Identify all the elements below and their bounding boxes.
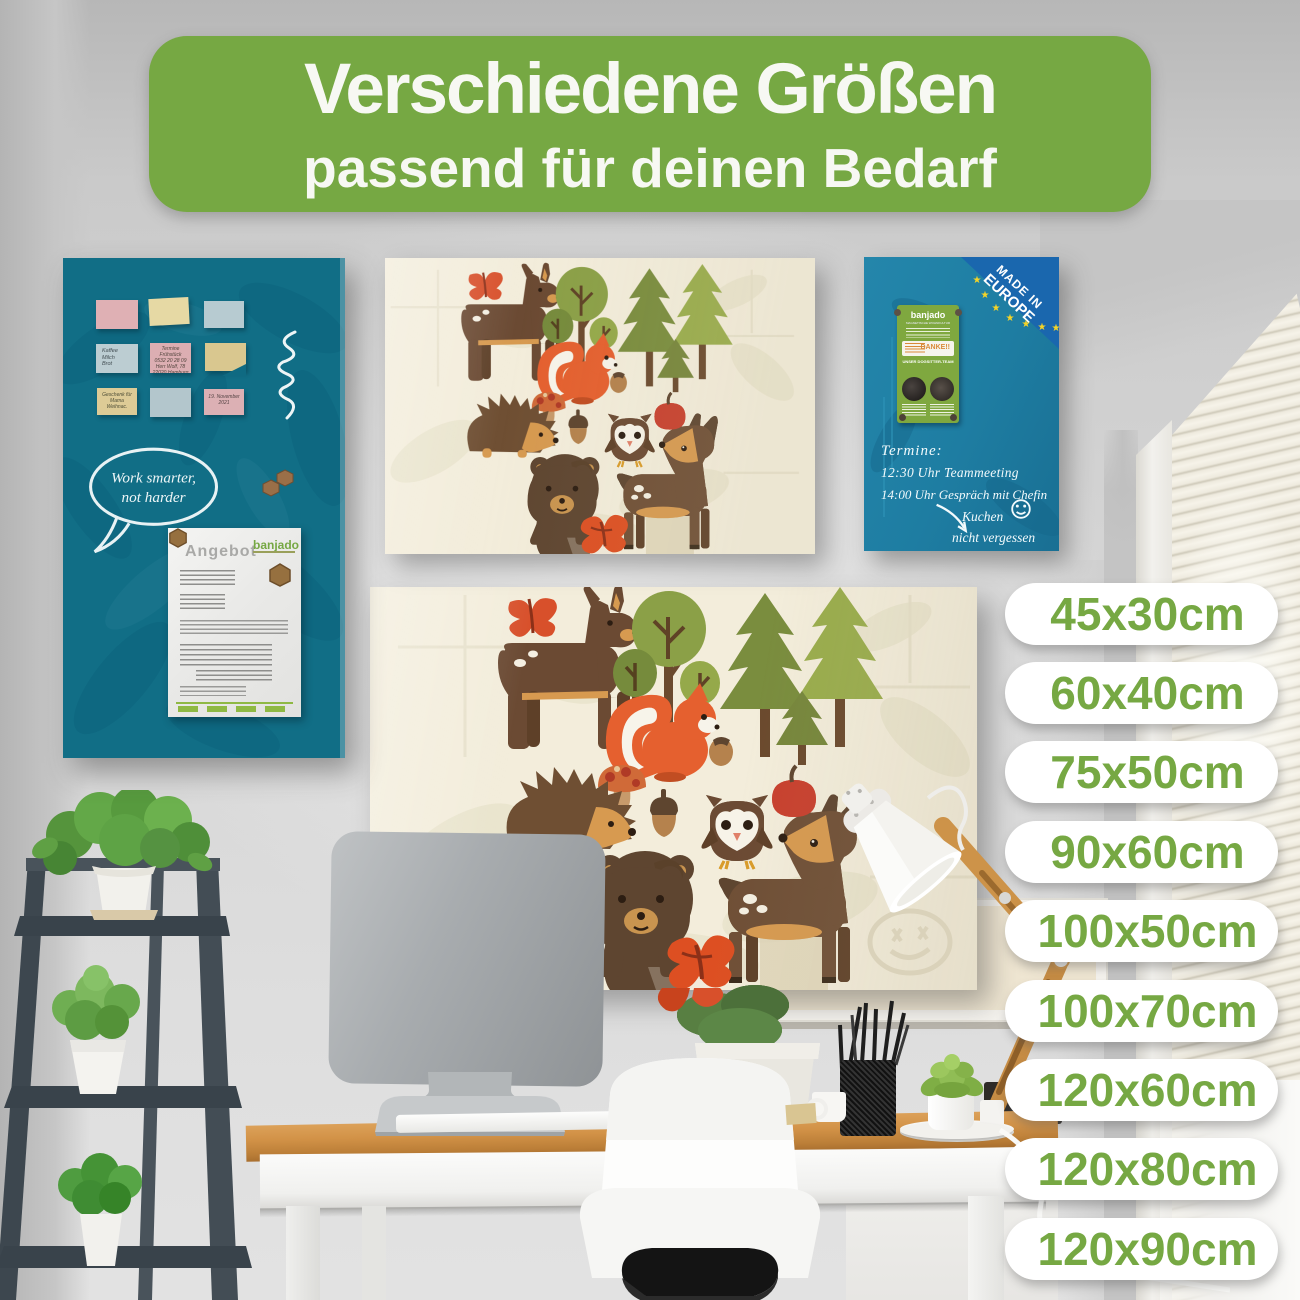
svg-text:★: ★ [981,290,990,301]
svg-text:★: ★ [992,303,1001,314]
svg-text:not harder: not harder [121,489,185,506]
svg-text:★: ★ [1052,323,1059,334]
svg-text:★: ★ [1038,322,1047,333]
svg-text:★: ★ [1006,313,1015,324]
svg-text:Work smarter,: Work smarter, [111,470,196,487]
svg-text:★: ★ [1022,319,1031,330]
svg-text:★: ★ [973,275,982,286]
